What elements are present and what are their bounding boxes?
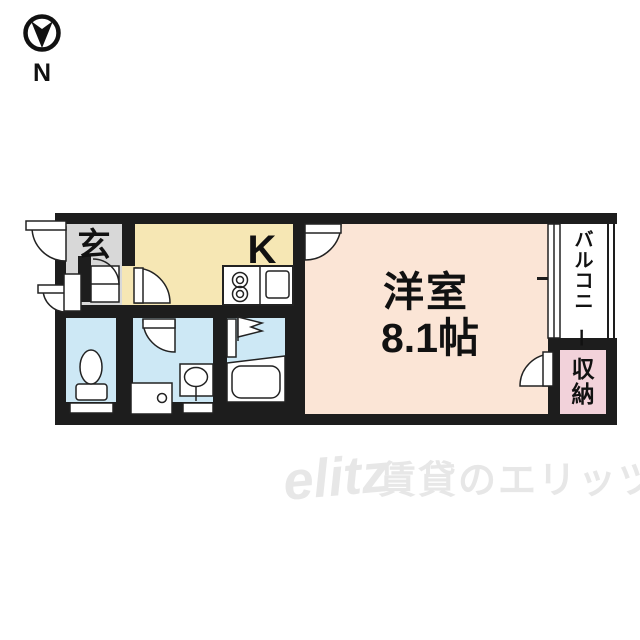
compass-north-label: N	[33, 59, 51, 87]
kitchen-label: K	[248, 228, 277, 272]
watermark-text: 賃貸のエリッツ	[377, 460, 640, 502]
window-center-tick	[537, 277, 548, 280]
entrance-label: 玄	[78, 226, 111, 263]
front-door-icon	[26, 221, 66, 261]
pipe-space-box	[64, 274, 81, 311]
washbasin-icon	[180, 364, 213, 401]
floorplan-image: N	[0, 0, 640, 640]
balcony-railing	[607, 224, 615, 342]
washing-machine-pan-icon	[131, 383, 172, 414]
floorplan-svg: N	[0, 0, 640, 640]
toilet-window	[70, 403, 113, 413]
meter-box-door-icon	[38, 285, 66, 312]
main-room-label: 洋室	[383, 269, 469, 315]
north-compass-icon: N	[26, 17, 59, 88]
entrance-closet-door-icon	[91, 259, 119, 302]
main-room-size-label: 8.1帖	[381, 315, 479, 361]
watermark: elitz 賃貸のエリッツ	[281, 443, 640, 512]
bathtub-icon	[227, 356, 285, 402]
watermark-logo: elitz	[281, 443, 391, 512]
storage-label: 収納	[572, 356, 596, 407]
washroom-vent	[183, 403, 213, 413]
